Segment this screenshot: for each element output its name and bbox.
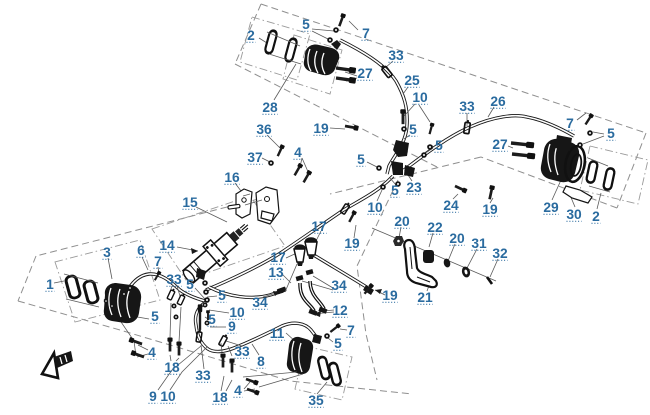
svg-text:31: 31 (471, 236, 487, 251)
svg-text:10: 10 (160, 389, 176, 404)
svg-text:5: 5 (302, 17, 310, 32)
svg-text:5: 5 (409, 122, 417, 137)
svg-text:19: 19 (313, 121, 329, 136)
svg-text:36: 36 (256, 122, 272, 137)
svg-text:35: 35 (308, 393, 324, 408)
svg-text:9: 9 (228, 319, 236, 334)
svg-text:5: 5 (391, 183, 399, 198)
svg-text:20: 20 (449, 231, 465, 246)
svg-text:25: 25 (404, 73, 420, 88)
svg-text:19: 19 (382, 288, 398, 303)
svg-text:5: 5 (151, 309, 159, 324)
svg-text:1: 1 (46, 277, 54, 292)
svg-text:6: 6 (137, 243, 145, 258)
svg-text:11: 11 (270, 326, 285, 341)
svg-text:22: 22 (427, 220, 443, 235)
svg-text:20: 20 (394, 214, 410, 229)
svg-text:29: 29 (543, 200, 559, 215)
svg-text:8: 8 (257, 354, 265, 369)
svg-text:33: 33 (166, 272, 182, 287)
svg-text:5: 5 (357, 152, 365, 167)
svg-text:21: 21 (417, 290, 433, 305)
svg-text:15: 15 (182, 195, 198, 210)
svg-text:33: 33 (195, 368, 211, 383)
svg-text:5: 5 (186, 277, 194, 292)
svg-text:27: 27 (492, 137, 508, 152)
svg-text:18: 18 (212, 390, 228, 405)
svg-text:30: 30 (566, 207, 582, 222)
svg-text:17: 17 (311, 219, 327, 234)
svg-text:5: 5 (435, 138, 443, 153)
svg-text:18: 18 (164, 360, 180, 375)
svg-text:26: 26 (490, 94, 506, 109)
svg-text:19: 19 (344, 236, 360, 251)
svg-text:5: 5 (218, 288, 226, 303)
svg-text:37: 37 (247, 150, 263, 165)
svg-text:10: 10 (367, 200, 383, 215)
svg-text:24: 24 (443, 198, 459, 213)
svg-text:32: 32 (492, 246, 508, 261)
svg-text:4: 4 (234, 383, 242, 398)
svg-text:10: 10 (412, 90, 428, 105)
svg-text:34: 34 (331, 278, 347, 293)
svg-text:33: 33 (234, 344, 250, 359)
svg-text:34: 34 (252, 295, 268, 310)
svg-text:4: 4 (148, 345, 156, 360)
svg-text:3: 3 (103, 245, 111, 260)
svg-text:19: 19 (482, 202, 498, 217)
svg-text:28: 28 (262, 100, 278, 115)
svg-text:17: 17 (270, 250, 286, 265)
svg-text:5: 5 (208, 312, 216, 327)
svg-text:5: 5 (334, 336, 342, 351)
svg-text:33: 33 (388, 48, 404, 63)
svg-text:7: 7 (362, 26, 370, 41)
svg-text:14: 14 (159, 238, 175, 253)
svg-text:7: 7 (566, 116, 574, 131)
svg-text:13: 13 (268, 265, 284, 280)
svg-text:16: 16 (224, 170, 240, 185)
svg-text:9: 9 (149, 389, 157, 404)
svg-text:7: 7 (154, 254, 162, 269)
svg-text:2: 2 (592, 209, 600, 224)
svg-text:5: 5 (607, 126, 615, 141)
svg-text:33: 33 (459, 99, 475, 114)
svg-text:27: 27 (357, 66, 373, 81)
svg-text:7: 7 (347, 323, 355, 338)
svg-text:4: 4 (294, 145, 302, 160)
svg-text:2: 2 (247, 28, 255, 43)
svg-text:10: 10 (229, 305, 245, 320)
svg-text:23: 23 (406, 180, 422, 195)
svg-text:12: 12 (332, 303, 348, 318)
